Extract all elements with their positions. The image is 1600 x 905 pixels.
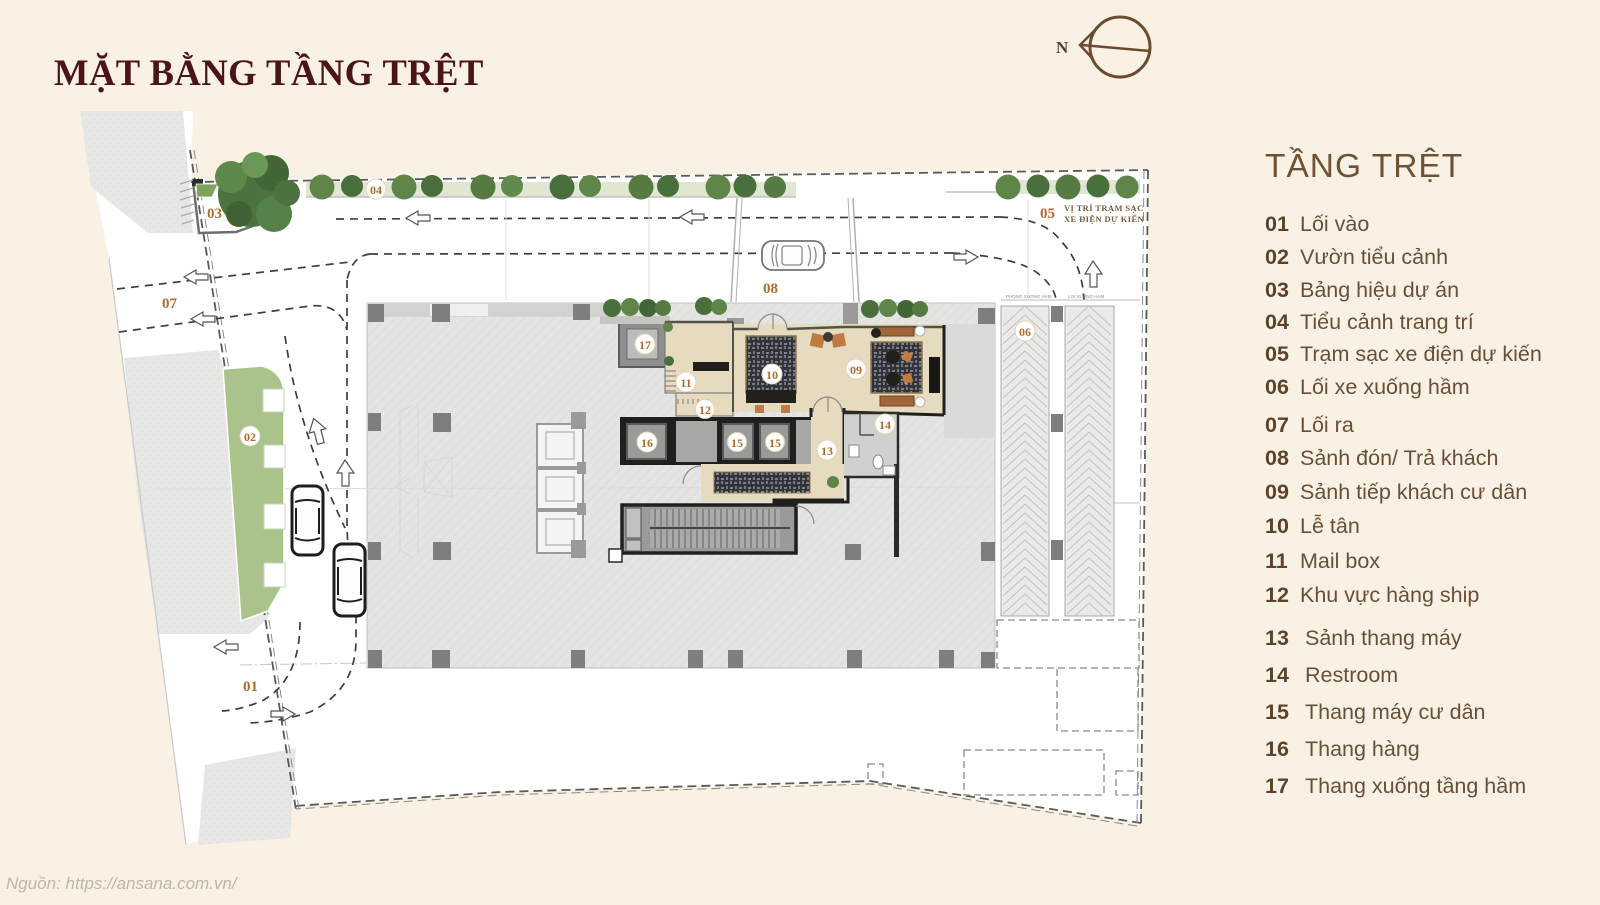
svg-text:13: 13 <box>821 444 833 458</box>
svg-text:Vườn tiểu cảnh: Vườn tiểu cảnh <box>1300 245 1448 269</box>
svg-text:Thang máy cư dân: Thang máy cư dân <box>1305 700 1486 724</box>
svg-text:Trạm sạc xe điện dự kiến: Trạm sạc xe điện dự kiến <box>1300 342 1542 366</box>
svg-text:03: 03 <box>207 206 222 222</box>
svg-text:Tiểu cảnh trang trí: Tiểu cảnh trang trí <box>1300 310 1474 334</box>
svg-text:Thang xuống tầng hầm: Thang xuống tầng hầm <box>1305 774 1526 798</box>
svg-text:16: 16 <box>1265 737 1289 761</box>
svg-text:06: 06 <box>1019 325 1031 339</box>
svg-text:01: 01 <box>1265 212 1289 236</box>
svg-text:03: 03 <box>1265 278 1289 302</box>
svg-text:PHONG XUONG HAM: PHONG XUONG HAM <box>1006 294 1052 299</box>
svg-text:05: 05 <box>1265 342 1289 366</box>
svg-text:17: 17 <box>1265 774 1289 798</box>
svg-text:02: 02 <box>244 430 256 444</box>
svg-text:MẶT BẰNG TẦNG TRỆT: MẶT BẰNG TẦNG TRỆT <box>54 52 484 93</box>
svg-text:15: 15 <box>1265 700 1289 724</box>
svg-text:17: 17 <box>639 338 651 352</box>
svg-text:Lối ra: Lối ra <box>1300 413 1354 437</box>
svg-text:15: 15 <box>769 436 781 450</box>
svg-text:13: 13 <box>1265 626 1289 650</box>
svg-text:07: 07 <box>1265 413 1289 437</box>
svg-text:11: 11 <box>680 376 691 390</box>
svg-text:06: 06 <box>1265 375 1289 399</box>
svg-text:04: 04 <box>370 183 382 197</box>
svg-text:XE ĐIỆN DỰ KIẾN: XE ĐIỆN DỰ KIẾN <box>1064 214 1145 224</box>
svg-text:TẦNG TRỆT: TẦNG TRỆT <box>1265 147 1463 185</box>
svg-text:Sảnh đón/ Trả khách: Sảnh đón/ Trả khách <box>1300 446 1498 470</box>
svg-text:Lối xe xuống hầm: Lối xe xuống hầm <box>1300 375 1470 399</box>
svg-text:09: 09 <box>850 363 862 377</box>
svg-text:Khu vực hàng ship: Khu vực hàng ship <box>1300 583 1479 607</box>
svg-text:Nguồn: https://ansana.com.vn/: Nguồn: https://ansana.com.vn/ <box>6 874 239 893</box>
svg-text:Sảnh tiếp khách cư dân: Sảnh tiếp khách cư dân <box>1300 480 1527 504</box>
svg-text:02: 02 <box>1265 245 1289 269</box>
svg-text:Sảnh thang máy: Sảnh thang máy <box>1305 626 1462 650</box>
svg-text:Lối vào: Lối vào <box>1300 212 1369 236</box>
svg-text:10: 10 <box>766 368 778 382</box>
svg-text:14: 14 <box>1265 663 1289 687</box>
svg-text:VỊ TRÍ TRẠM SẠC: VỊ TRÍ TRẠM SẠC <box>1064 203 1144 213</box>
svg-text:08: 08 <box>763 281 778 297</box>
svg-text:Lễ tân: Lễ tân <box>1300 513 1360 538</box>
svg-text:10: 10 <box>1265 514 1289 538</box>
svg-text:14: 14 <box>879 418 891 432</box>
svg-text:12: 12 <box>699 403 711 417</box>
svg-text:Mail box: Mail box <box>1300 549 1380 573</box>
svg-text:Thang hàng: Thang hàng <box>1305 737 1420 761</box>
svg-text:08: 08 <box>1265 446 1289 470</box>
svg-text:N: N <box>1056 38 1069 57</box>
svg-text:Bảng hiệu dự án: Bảng hiệu dự án <box>1300 278 1459 302</box>
svg-text:09: 09 <box>1265 480 1289 504</box>
svg-text:01: 01 <box>243 679 258 695</box>
svg-text:15: 15 <box>731 436 743 450</box>
svg-text:04: 04 <box>1265 310 1289 334</box>
svg-text:07: 07 <box>162 296 178 312</box>
svg-text:16: 16 <box>641 436 653 450</box>
svg-text:Restroom: Restroom <box>1305 663 1398 687</box>
svg-text:LOI XUONG HAM: LOI XUONG HAM <box>1068 294 1105 299</box>
svg-text:12: 12 <box>1265 583 1289 607</box>
svg-text:11: 11 <box>1265 549 1288 573</box>
svg-text:05: 05 <box>1040 206 1055 222</box>
